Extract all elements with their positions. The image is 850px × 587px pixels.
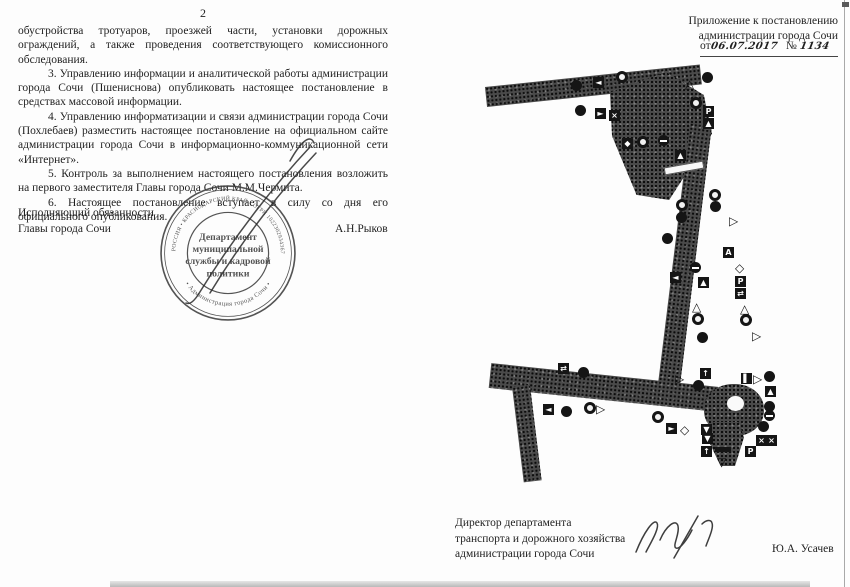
traffic-sign-ring: [709, 189, 721, 201]
traffic-sign-sq: ↑: [701, 446, 712, 457]
traffic-sign-ring: [692, 313, 704, 325]
traffic-sign-circle: [561, 406, 572, 417]
date-prefix: от: [700, 40, 711, 52]
road-scheme-map: ◄►×△P▲◆▲▷◄▲A◇P⇄△△▷⇄◄▷►◇▷↑▌▷▲▼▼↑▽P××: [450, 60, 800, 505]
traffic-sign-sq: ◄: [670, 272, 681, 283]
traffic-sign-trir: ▷: [753, 373, 762, 385]
traffic-sign-ring: [584, 402, 596, 414]
traffic-sign-trir: ▷: [729, 215, 738, 227]
scan-bottom-band: [110, 581, 810, 587]
traffic-sign-circle: [702, 72, 713, 83]
roundabout-island: [727, 396, 744, 411]
traffic-sign-sq: ⇄: [558, 363, 569, 374]
traffic-sign-tri: △: [685, 78, 694, 90]
traffic-sign-diam: ◇: [735, 262, 744, 274]
handwritten-date: 06.07.2017: [710, 41, 779, 52]
appendix-line: Приложение к постановлению: [618, 14, 838, 29]
signer-name: А.Н.Рыков: [335, 223, 388, 235]
traffic-sign-sq: ◄: [593, 77, 604, 88]
traffic-sign-noentry: [764, 410, 775, 421]
director-title-line: транспорта и дорожного хозяйства: [455, 532, 625, 548]
traffic-sign-hbar: [715, 447, 731, 452]
road-segment-branch: [512, 385, 542, 482]
traffic-sign-diam: ◇: [680, 424, 689, 436]
signer-title: Исполняющий обязанности: [18, 207, 154, 219]
traffic-sign-circle: [575, 105, 586, 116]
traffic-sign-circle: [697, 332, 708, 343]
appendix-date-line: от06.07.2017 № 1134: [700, 40, 838, 57]
traffic-sign-ring: [690, 97, 702, 109]
handwritten-number: 1134: [799, 41, 830, 52]
traffic-sign-sq: ◄: [543, 404, 554, 415]
traffic-sign-sq: ↑: [700, 368, 711, 379]
traffic-sign-sq: A: [723, 247, 734, 258]
traffic-sign-circle: [710, 201, 721, 212]
traffic-sign-sq: ▲: [765, 386, 776, 397]
number-prefix: №: [786, 40, 797, 52]
traffic-sign-trir: ▷: [596, 403, 605, 415]
traffic-sign-sq: P: [745, 446, 756, 457]
traffic-sign-noentry: [658, 135, 669, 146]
traffic-sign-circle: [578, 367, 589, 378]
traffic-sign-circle: [758, 421, 769, 432]
traffic-sign-circle: [662, 233, 673, 244]
handwritten-signature: [150, 125, 330, 310]
traffic-sign-sq: ⇄: [735, 288, 746, 299]
traffic-sign-sq: ►: [666, 423, 677, 434]
traffic-sign-ring: [652, 411, 664, 423]
page-number: 2: [18, 6, 388, 21]
traffic-sign-sq: ▲: [703, 118, 714, 129]
traffic-sign-circle: [676, 212, 687, 223]
traffic-sign-sq: ◆: [622, 138, 633, 149]
traffic-sign-trir: ▷: [675, 373, 684, 385]
traffic-sign-circle: [571, 80, 582, 91]
traffic-sign-sq: ▲: [675, 150, 686, 161]
director-title-line: администрации города Сочи: [455, 547, 625, 563]
traffic-sign-trid: ▽: [717, 456, 726, 468]
traffic-sign-sq: ×: [609, 110, 620, 121]
paragraph: 3. Управлению информации и аналитической…: [18, 67, 388, 110]
traffic-sign-noentry: [690, 262, 701, 273]
scan-corner-mark: [842, 2, 849, 7]
paragraph: обустройства тротуаров, проезжей части, …: [18, 24, 388, 67]
traffic-sign-ring: [740, 314, 752, 326]
traffic-sign-sq: P: [735, 276, 746, 287]
traffic-sign-tri: △: [692, 301, 701, 313]
traffic-sign-sq: ▌: [741, 373, 752, 384]
traffic-sign-trir: ▷: [752, 330, 761, 342]
traffic-sign-ring: [637, 136, 649, 148]
traffic-sign-ring: [616, 71, 628, 83]
traffic-sign-sq: ×: [766, 435, 777, 446]
director-signature: [630, 510, 740, 562]
director-title-line: Директор департамента: [455, 516, 625, 532]
traffic-sign-sq: ▼: [702, 433, 713, 444]
director-name: Ю.А. Усачев: [772, 543, 834, 555]
traffic-sign-ring: [676, 199, 688, 211]
director-title: Директор департамента транспорта и дорож…: [455, 516, 625, 563]
traffic-sign-sq: ►: [595, 108, 606, 119]
signer-title: Главы города Сочи: [18, 223, 111, 235]
scan-edge-line: [844, 0, 845, 587]
traffic-sign-sq: P: [703, 106, 714, 117]
traffic-sign-sq: ▲: [698, 277, 709, 288]
traffic-sign-circle: [764, 371, 775, 382]
scanned-document: 2 обустройства тротуаров, проезжей части…: [0, 0, 850, 587]
traffic-sign-circle: [693, 380, 704, 391]
